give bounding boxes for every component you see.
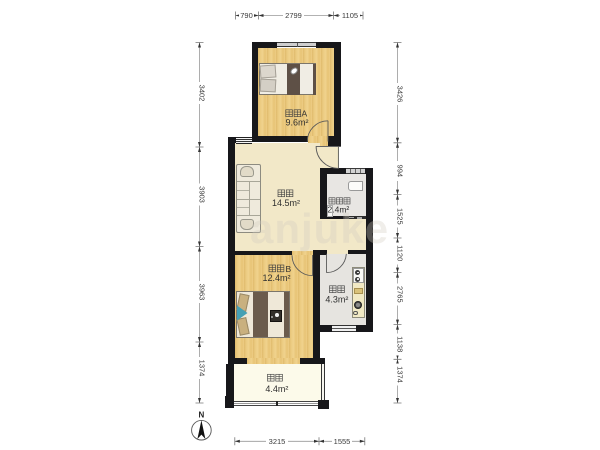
svg-text:4.3m²: 4.3m² — [325, 294, 348, 304]
svg-text:anjuke: anjuke — [250, 205, 389, 252]
svg-text:3215: 3215 — [269, 437, 286, 446]
svg-text:1525: 1525 — [396, 208, 405, 225]
svg-text:1555: 1555 — [334, 437, 351, 446]
svg-text:9.6m²: 9.6m² — [285, 118, 308, 128]
svg-text:2799: 2799 — [285, 11, 302, 20]
svg-text:12.4m²: 12.4m² — [262, 273, 290, 283]
svg-text:2765: 2765 — [396, 286, 405, 303]
svg-text:3426: 3426 — [396, 86, 405, 103]
svg-text:1138: 1138 — [396, 336, 405, 352]
svg-text:1120: 1120 — [396, 245, 405, 261]
svg-text:3402: 3402 — [198, 85, 207, 102]
svg-text:N: N — [199, 411, 205, 420]
svg-text:1374: 1374 — [396, 366, 405, 383]
svg-text:4.4m²: 4.4m² — [265, 384, 288, 394]
svg-text:3963: 3963 — [198, 284, 207, 301]
svg-text:790: 790 — [240, 11, 253, 20]
svg-text:1374: 1374 — [198, 360, 207, 377]
svg-text:994: 994 — [396, 165, 405, 178]
svg-text:2.4m²: 2.4m² — [328, 205, 350, 215]
svg-text:14.5m²: 14.5m² — [272, 198, 300, 208]
svg-text:3903: 3903 — [198, 186, 207, 203]
svg-text:1105: 1105 — [342, 11, 358, 20]
